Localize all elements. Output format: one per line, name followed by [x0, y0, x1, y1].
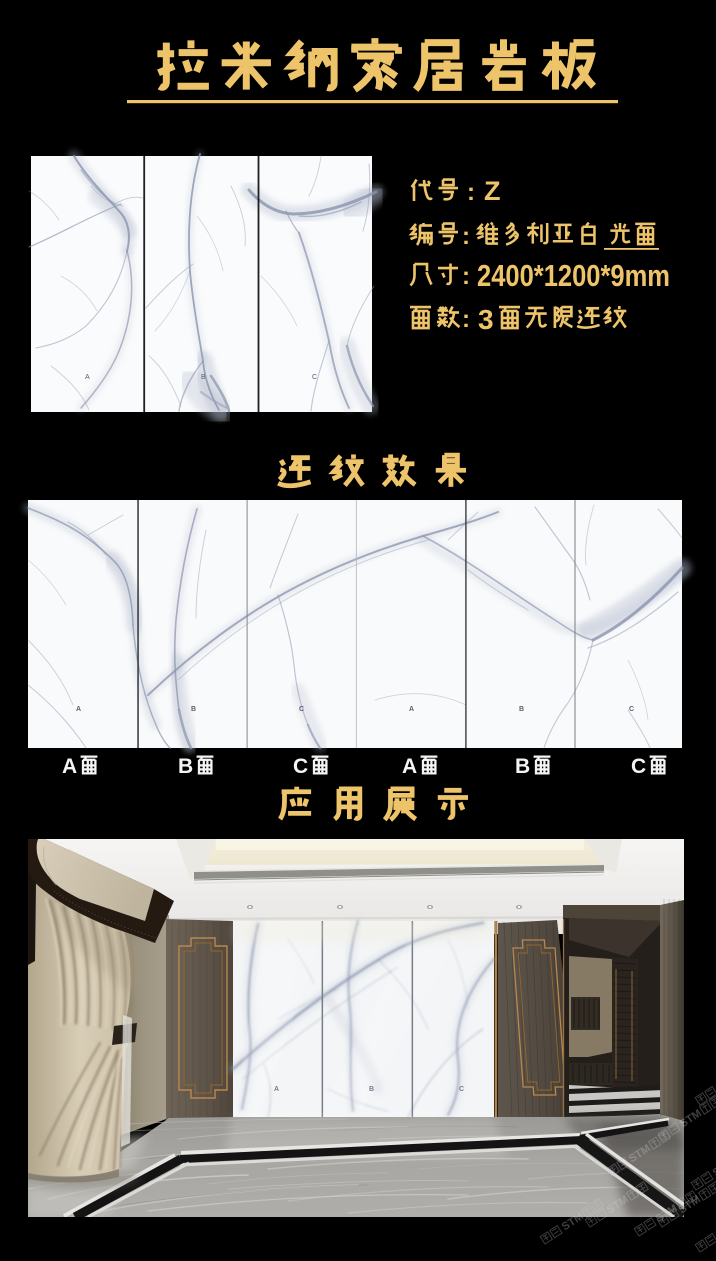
svg-text:B: B: [201, 374, 206, 381]
svg-text:3: 3: [478, 304, 494, 335]
svg-text:B: B: [369, 1086, 374, 1093]
svg-text:A: A: [85, 374, 90, 381]
svg-text:A: A: [62, 755, 77, 778]
svg-text:B: B: [178, 755, 193, 778]
svg-text:C: C: [459, 1086, 464, 1093]
svg-text:B: B: [515, 755, 530, 778]
svg-text::: :: [462, 223, 470, 250]
svg-text:C: C: [631, 755, 646, 778]
svg-text:B: B: [519, 706, 524, 713]
svg-text::: :: [467, 179, 475, 206]
svg-text:A: A: [76, 706, 81, 713]
svg-text:A: A: [274, 1086, 279, 1093]
svg-text:2400*1200*9mm: 2400*1200*9mm: [477, 258, 670, 293]
svg-text::: :: [462, 306, 470, 333]
svg-text:Z: Z: [484, 176, 501, 206]
svg-text:A: A: [409, 706, 414, 713]
svg-text:C: C: [312, 374, 317, 381]
svg-text:C: C: [293, 755, 308, 778]
svg-text:C: C: [299, 706, 304, 713]
svg-text:C: C: [629, 706, 634, 713]
svg-text:A: A: [402, 755, 417, 778]
svg-text:B: B: [191, 706, 196, 713]
svg-text::: :: [462, 263, 470, 290]
